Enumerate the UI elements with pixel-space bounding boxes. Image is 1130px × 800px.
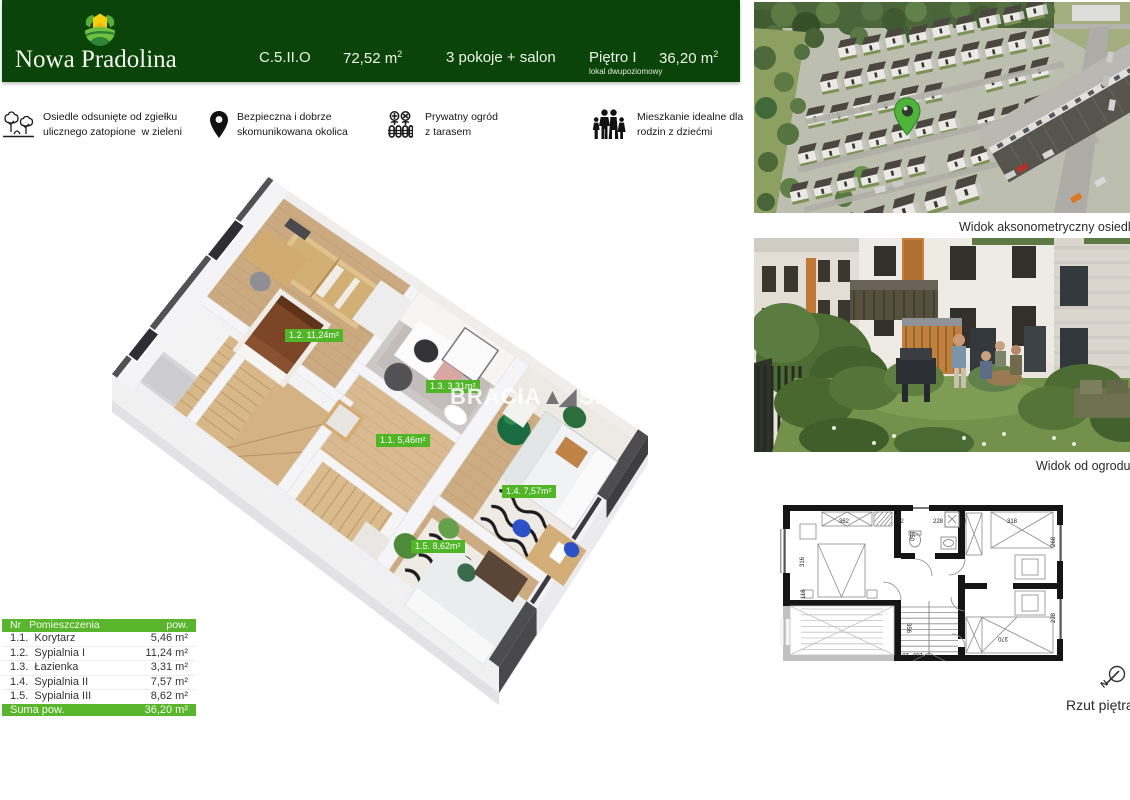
svg-text:12: 12 xyxy=(897,519,904,525)
svg-text:180: 180 xyxy=(912,651,923,657)
svg-text:118: 118 xyxy=(801,589,807,599)
svg-text:318: 318 xyxy=(1007,519,1018,525)
svg-text:370: 370 xyxy=(997,635,1008,641)
svg-text:362: 362 xyxy=(839,519,850,525)
svg-text:N: N xyxy=(1098,678,1109,690)
svg-text:18: 18 xyxy=(902,651,909,657)
svg-text:238: 238 xyxy=(1051,612,1057,623)
svg-text:316: 316 xyxy=(800,556,806,567)
svg-text:268: 268 xyxy=(1051,536,1057,547)
svg-text:356: 356 xyxy=(905,623,911,634)
svg-text:12: 12 xyxy=(960,519,967,525)
svg-text:228: 228 xyxy=(933,519,944,525)
svg-text:150: 150 xyxy=(908,531,914,542)
